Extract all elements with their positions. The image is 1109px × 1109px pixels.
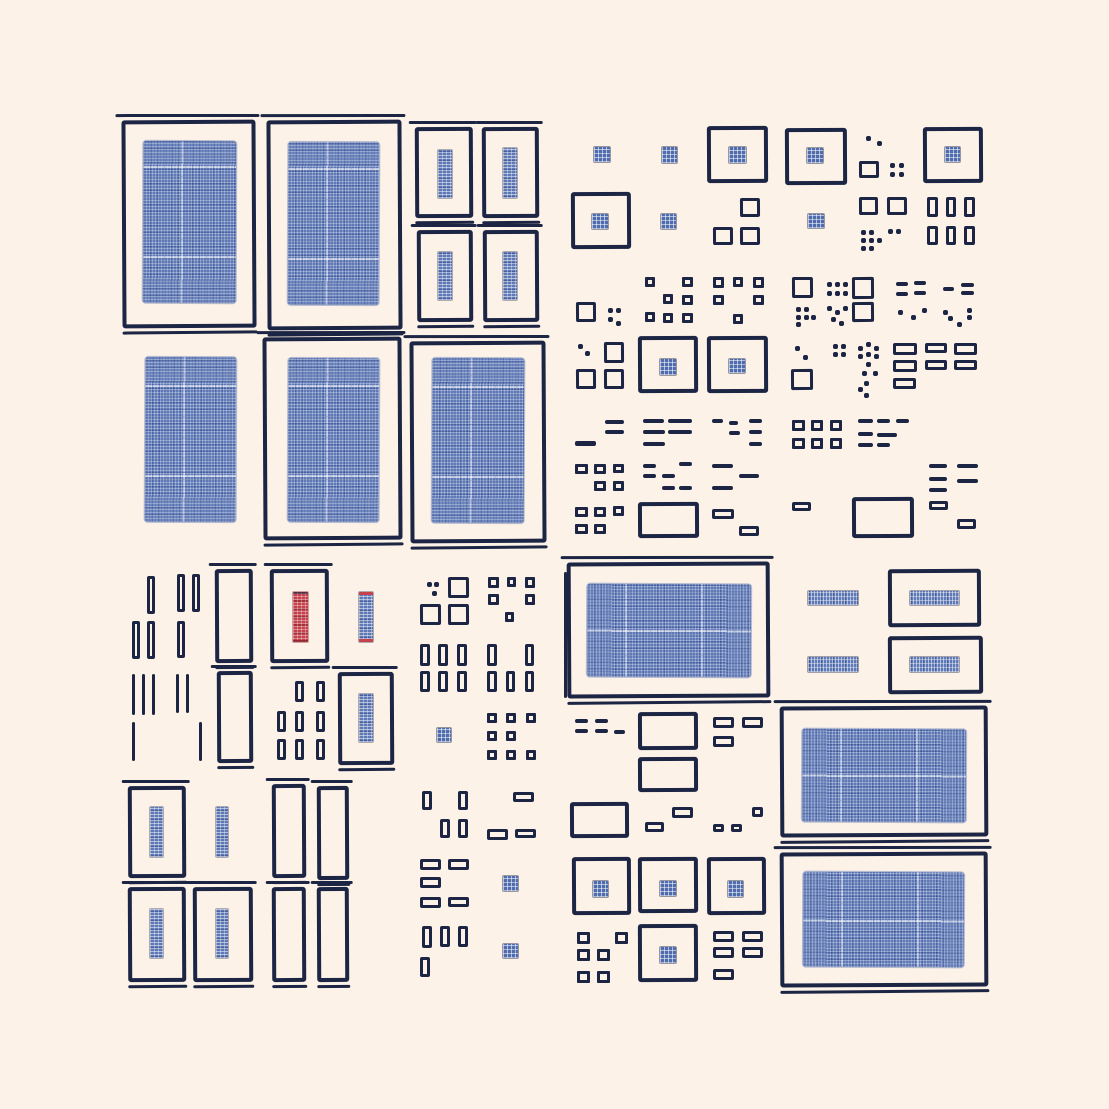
tiny-outlined-square (682, 277, 693, 287)
vertical-outlined-rect (295, 681, 304, 702)
wide-outlined-rect (742, 931, 763, 942)
tiny-outlined-square (713, 295, 724, 305)
blue-hatched-square (592, 214, 608, 229)
blue-hatched-square (945, 147, 960, 162)
ink-line (186, 674, 189, 713)
vertical-outlined-rect (177, 574, 185, 612)
ink-dash (914, 281, 926, 285)
wide-outlined-rect (731, 824, 742, 832)
tiny-outlined-square (811, 438, 823, 449)
ink-dot (943, 310, 948, 315)
ink-dot (898, 310, 903, 315)
wide-outlined-rect (954, 343, 977, 355)
tiny-outlined-square (594, 481, 606, 491)
wide-outlined-rect (420, 897, 441, 908)
blue-hatched-bar-red-caps (359, 592, 373, 642)
tiny-outlined-square (488, 594, 499, 605)
blue-hatched-square (662, 147, 677, 163)
tiny-outlined-square (577, 949, 590, 961)
tiny-outlined-square (526, 750, 536, 760)
blue-hatched-square (661, 214, 676, 229)
ink-dot (616, 308, 621, 313)
ink-line (152, 674, 155, 715)
ink-dash (739, 474, 759, 478)
ink-dot (804, 307, 809, 312)
tiny-outlined-square (663, 313, 673, 323)
sketched-frame (217, 671, 253, 763)
vertical-outlined-rect (525, 644, 534, 666)
blue-hatched-square (593, 881, 608, 897)
wide-outlined-rect (713, 736, 734, 747)
tiny-outlined-square (663, 294, 673, 304)
ink-dash (929, 477, 947, 481)
ink-dot (890, 172, 895, 177)
vertical-outlined-rect (277, 739, 286, 760)
sketched-frame (638, 502, 699, 538)
outlined-square (604, 369, 624, 389)
ink-dot (890, 163, 895, 168)
tiny-outlined-square (575, 464, 588, 474)
ink-dash (749, 442, 762, 446)
tiny-outlined-square (753, 277, 764, 288)
ink-dot (434, 582, 439, 587)
blue-hatched-square (808, 214, 824, 228)
blue-hatched-fill (288, 142, 380, 305)
tiny-outlined-square (594, 464, 606, 474)
ink-dash (858, 419, 873, 423)
vertical-outlined-rect (422, 926, 432, 948)
wide-outlined-rect (739, 526, 759, 536)
wide-outlined-rect (513, 792, 534, 802)
tiny-outlined-square (506, 713, 516, 723)
tiny-outlined-square (830, 438, 842, 449)
wide-outlined-rect (742, 947, 763, 958)
blue-hatched-bar-vertical (438, 252, 452, 300)
tiny-outlined-square (597, 971, 610, 983)
ink-dash (668, 419, 692, 423)
wide-outlined-rect (893, 378, 916, 389)
vertical-outlined-rect (316, 739, 325, 760)
ink-dash (961, 283, 974, 287)
blue-hatched-fill (802, 729, 966, 823)
ink-line (176, 674, 179, 713)
ink-dash (668, 430, 692, 434)
sketched-frame (317, 887, 349, 982)
sketched-frame (272, 887, 306, 982)
ink-line (199, 722, 202, 761)
blue-hatched-bar-vertical (150, 909, 163, 958)
blue-hatched-square (437, 728, 451, 742)
ink-dot (835, 291, 840, 296)
ink-dash (929, 464, 947, 468)
outlined-square (448, 577, 469, 598)
ink-dot (858, 387, 863, 392)
wide-outlined-rect (448, 897, 469, 907)
sketched-frame (570, 802, 629, 838)
ink-dot (967, 308, 972, 313)
ink-dash (929, 488, 947, 492)
vertical-outlined-rect (132, 621, 140, 659)
vertical-outlined-rect (422, 791, 432, 810)
ink-dot (922, 308, 927, 313)
blue-hatched-fill (432, 358, 525, 523)
ink-dash (957, 464, 978, 468)
wide-outlined-rect (713, 947, 734, 958)
ink-dash (595, 729, 608, 733)
vertical-outlined-rect (964, 226, 975, 245)
ink-dot (843, 291, 848, 296)
ink-dash (712, 464, 733, 468)
sketched-frame (272, 784, 306, 878)
ink-dot (608, 308, 613, 313)
wide-outlined-rect (448, 859, 469, 870)
vertical-outlined-rect (946, 226, 956, 245)
tiny-outlined-square (526, 713, 536, 723)
outlined-square (604, 342, 624, 363)
vertical-outlined-rect (438, 671, 448, 692)
outlined-square (740, 198, 760, 217)
wide-outlined-rect (929, 501, 948, 510)
ink-dot (841, 344, 846, 349)
blue-hatched-square (729, 359, 745, 373)
tiny-outlined-square (613, 506, 624, 516)
ink-dash (643, 442, 665, 446)
ink-dot (831, 317, 836, 322)
sketched-frame (638, 712, 698, 750)
ink-dash (877, 419, 890, 423)
outlined-square (420, 604, 441, 625)
ink-dot (616, 321, 621, 326)
ink-dash (877, 433, 897, 437)
outlined-square (859, 197, 878, 215)
tiny-outlined-square (577, 971, 590, 983)
vertical-outlined-rect (316, 681, 325, 702)
red-hatched-bar (293, 592, 308, 642)
vertical-outlined-rect (295, 711, 304, 732)
ink-dot (888, 229, 893, 234)
wide-outlined-rect (712, 509, 734, 519)
ink-dot (827, 291, 832, 296)
ink-dash (662, 486, 675, 490)
ink-dash (679, 462, 692, 466)
outlined-square (792, 277, 813, 298)
ink-dot (866, 362, 871, 367)
ink-dash (858, 432, 873, 436)
outlined-square (713, 227, 733, 245)
ink-dot (795, 346, 800, 351)
blue-hatched-square (660, 359, 676, 375)
blue-hatched-square (503, 944, 518, 958)
ink-dash (712, 419, 723, 423)
vertical-outlined-rect (277, 711, 286, 732)
tiny-outlined-square (594, 507, 606, 517)
outlined-square (791, 369, 813, 390)
vertical-outlined-rect (487, 644, 497, 666)
wide-outlined-rect (713, 824, 724, 832)
ink-dash (662, 474, 675, 478)
ink-dot (877, 238, 882, 243)
tiny-outlined-square (487, 731, 497, 741)
wide-outlined-rect (645, 822, 664, 832)
vertical-outlined-rect (147, 576, 155, 614)
ink-dash (896, 282, 908, 286)
blue-hatched-bar-vertical (150, 807, 163, 857)
ink-dot (804, 315, 809, 320)
ink-dash (957, 479, 978, 483)
blue-hatched-bar-vertical (438, 150, 452, 198)
vertical-outlined-rect (440, 926, 450, 947)
outlined-square (576, 302, 596, 322)
ink-dot (948, 316, 953, 321)
ink-dot (835, 282, 840, 287)
wide-outlined-rect (925, 343, 947, 353)
outlined-square (852, 302, 874, 322)
vertical-outlined-rect (946, 197, 956, 217)
ink-line (132, 722, 135, 761)
blue-hatched-bar-vertical (503, 252, 517, 300)
ink-line (132, 674, 135, 715)
blue-hatched-square (503, 876, 518, 891)
ink-dot (877, 141, 882, 146)
page-body: { "artwork": { "kind": "abstract-sketch-… (0, 0, 1109, 1109)
ink-dash (643, 419, 664, 423)
ink-dash (961, 291, 974, 295)
wide-outlined-rect (893, 343, 917, 355)
tiny-outlined-square (488, 577, 499, 588)
outlined-square (852, 277, 874, 299)
tiny-outlined-square (615, 932, 628, 944)
tiny-outlined-square (525, 594, 535, 605)
tiny-outlined-square (645, 277, 655, 287)
ink-dot (827, 282, 832, 287)
outlined-square (859, 161, 879, 178)
ink-dot (796, 322, 801, 327)
ink-dot (866, 136, 871, 141)
ink-dot (899, 163, 904, 168)
ink-dot (911, 315, 916, 320)
tiny-outlined-square (505, 612, 514, 622)
vertical-outlined-rect (964, 197, 975, 217)
tiny-outlined-square (733, 314, 743, 324)
outlined-square (887, 197, 907, 215)
ink-dot (835, 310, 840, 315)
blue-hatched-fill (288, 358, 380, 522)
ink-dash (679, 486, 692, 490)
ink-dot (861, 246, 866, 251)
blue-hatched-bar-horizontal (910, 591, 959, 605)
wide-outlined-rect (713, 931, 734, 942)
tiny-outlined-square (830, 420, 842, 431)
ink-dash (729, 421, 738, 425)
tiny-outlined-square (506, 731, 516, 741)
blue-hatched-square (729, 147, 746, 163)
vertical-outlined-rect (458, 819, 468, 838)
vertical-outlined-rect (487, 671, 497, 692)
ink-dash (877, 443, 890, 447)
tiny-outlined-square (613, 464, 624, 473)
ink-dash (729, 431, 740, 435)
ink-dot (869, 246, 874, 251)
ink-dot (869, 238, 874, 243)
ink-line (142, 674, 145, 715)
ink-dash (605, 420, 624, 424)
ink-dot (833, 344, 838, 349)
vertical-outlined-rect (458, 926, 468, 947)
tiny-outlined-square (487, 750, 497, 760)
ink-dash (575, 729, 588, 733)
vertical-outlined-rect (420, 957, 430, 977)
ink-dot (427, 582, 432, 587)
ink-dot (858, 354, 863, 359)
vertical-outlined-rect (927, 226, 938, 245)
ink-dot (578, 344, 583, 349)
wide-outlined-rect (420, 877, 441, 888)
ink-dash (575, 719, 588, 723)
vertical-outlined-rect (440, 819, 450, 838)
vertical-outlined-rect (177, 621, 185, 658)
ink-dot (858, 346, 863, 351)
tiny-outlined-square (753, 295, 764, 305)
ink-dash (595, 719, 608, 723)
blue-hatched-fill (145, 357, 237, 522)
sketched-frame (852, 497, 914, 538)
vertical-outlined-rect (458, 791, 468, 810)
blue-hatched-bar-horizontal (910, 657, 959, 672)
blue-hatched-bar-vertical (359, 694, 373, 742)
ink-dash (643, 474, 656, 478)
wide-outlined-rect (713, 717, 734, 728)
sketched-frame (215, 569, 253, 663)
ink-dot (833, 352, 838, 357)
ink-dot (967, 315, 972, 320)
ink-dot (896, 229, 901, 234)
vertical-outlined-rect (147, 621, 155, 659)
vertical-outlined-rect (420, 644, 430, 666)
vertical-outlined-rect (457, 671, 467, 692)
outlined-square (740, 227, 760, 245)
blue-hatched-square (594, 147, 610, 162)
wide-outlined-rect (713, 969, 734, 980)
ink-dash (605, 430, 624, 434)
wide-outlined-rect (954, 360, 977, 370)
sketched-frame (317, 786, 349, 880)
blue-hatched-fill (587, 584, 751, 678)
tiny-outlined-square (645, 312, 655, 322)
tiny-outlined-square (575, 507, 588, 517)
blue-hatched-square (728, 881, 743, 897)
ink-dash (896, 419, 909, 423)
blue-hatched-bar-horizontal (808, 591, 858, 605)
blue-hatched-fill (803, 872, 964, 968)
ink-dot (874, 354, 879, 359)
tiny-outlined-square (682, 313, 693, 323)
ink-dot (869, 230, 874, 235)
ink-dot (861, 230, 866, 235)
blue-hatched-square (660, 881, 676, 896)
tiny-outlined-square (811, 420, 823, 431)
vertical-outlined-rect (295, 739, 304, 760)
wide-outlined-rect (752, 807, 763, 817)
wide-outlined-rect (487, 829, 508, 840)
wide-outlined-rect (672, 807, 693, 818)
blue-hatched-bar-vertical (216, 909, 228, 958)
tiny-outlined-square (792, 420, 805, 431)
wide-outlined-rect (420, 859, 441, 870)
tiny-outlined-square (713, 277, 724, 288)
tiny-outlined-square (507, 577, 516, 587)
ink-dot (957, 322, 962, 327)
ink-dot (843, 282, 848, 287)
ink-dash (643, 430, 665, 434)
wide-outlined-rect (893, 360, 917, 372)
vertical-outlined-rect (192, 574, 200, 612)
ink-dot (839, 321, 844, 326)
ink-dot (899, 172, 904, 177)
ink-dash (749, 430, 762, 434)
ink-dot (866, 342, 871, 347)
blue-hatched-bar-horizontal (808, 657, 858, 672)
ink-dash (896, 292, 908, 296)
ink-dot (873, 371, 878, 376)
ink-dot (827, 306, 832, 311)
vertical-outlined-rect (506, 671, 515, 692)
ink-dash (914, 291, 926, 295)
ink-dash (858, 443, 873, 447)
tiny-outlined-square (506, 750, 516, 760)
vertical-outlined-rect (420, 671, 430, 692)
ink-dash (749, 419, 762, 423)
tiny-outlined-square (577, 932, 590, 944)
vertical-outlined-rect (316, 711, 325, 732)
ink-dot (585, 351, 590, 356)
tiny-outlined-square (613, 481, 624, 491)
tiny-outlined-square (575, 524, 588, 534)
ink-dash (643, 464, 656, 468)
ink-dash (614, 730, 625, 734)
vertical-outlined-rect (927, 197, 938, 217)
outlined-square (576, 369, 596, 389)
ink-dot (841, 352, 846, 357)
ink-dot (803, 355, 808, 360)
tiny-outlined-square (525, 577, 535, 588)
wide-outlined-rect (742, 717, 763, 728)
outlined-square (448, 604, 469, 625)
ink-dash (712, 486, 733, 490)
sketched-frame (638, 757, 698, 792)
tiny-outlined-square (487, 713, 497, 723)
ink-dot (864, 381, 869, 386)
vertical-outlined-rect (525, 671, 534, 692)
vertical-outlined-rect (457, 644, 467, 666)
ink-dot (796, 307, 801, 312)
ink-dot (874, 346, 879, 351)
abstract-artwork-canvas (0, 0, 1109, 1109)
wide-outlined-rect (792, 502, 811, 511)
blue-hatched-bar-vertical (503, 148, 517, 198)
ink-dash (575, 441, 596, 446)
ink-dot (843, 306, 848, 311)
tiny-outlined-square (682, 295, 693, 305)
wide-outlined-rect (515, 829, 536, 838)
tiny-outlined-square (733, 277, 743, 287)
ink-dot (432, 591, 437, 596)
ink-dot (608, 317, 613, 322)
wide-outlined-rect (957, 519, 976, 529)
tiny-outlined-square (792, 438, 805, 449)
blue-hatched-fill (143, 141, 237, 303)
wide-outlined-rect (925, 360, 947, 370)
ink-dot (861, 238, 866, 243)
